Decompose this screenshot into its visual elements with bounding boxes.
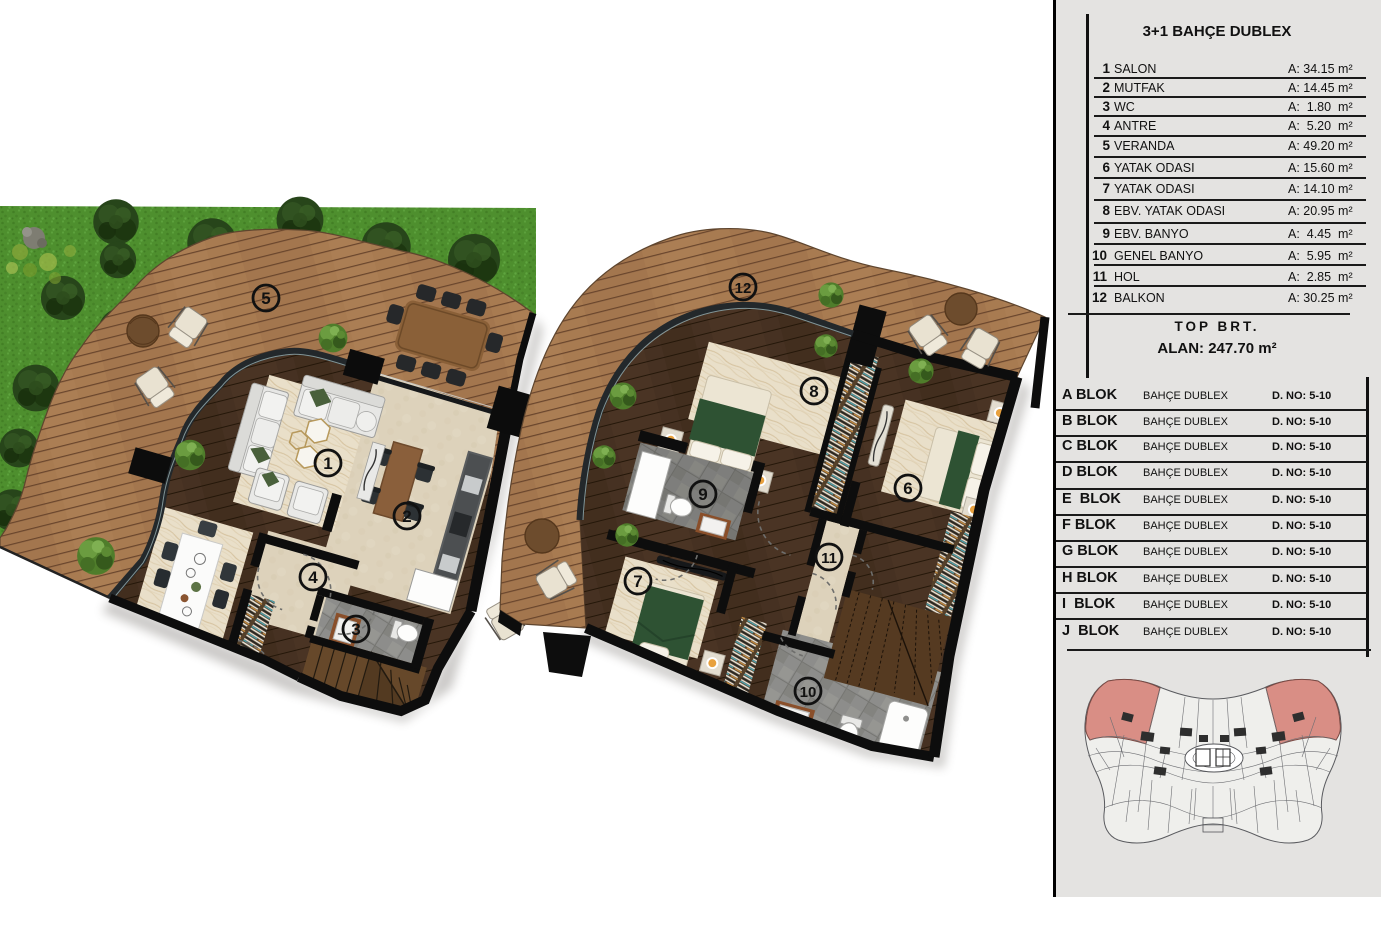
svg-text:4: 4: [308, 568, 318, 587]
svg-text:1: 1: [323, 454, 332, 473]
svg-text:10: 10: [800, 684, 817, 701]
svg-text:7: 7: [633, 572, 642, 591]
svg-text:8: 8: [809, 382, 818, 401]
svg-text:2: 2: [402, 507, 411, 526]
svg-text:11: 11: [821, 550, 837, 567]
svg-text:3: 3: [351, 620, 360, 639]
svg-text:6: 6: [903, 479, 912, 498]
svg-text:12: 12: [735, 280, 752, 297]
svg-text:5: 5: [261, 289, 270, 308]
svg-text:9: 9: [698, 485, 707, 504]
